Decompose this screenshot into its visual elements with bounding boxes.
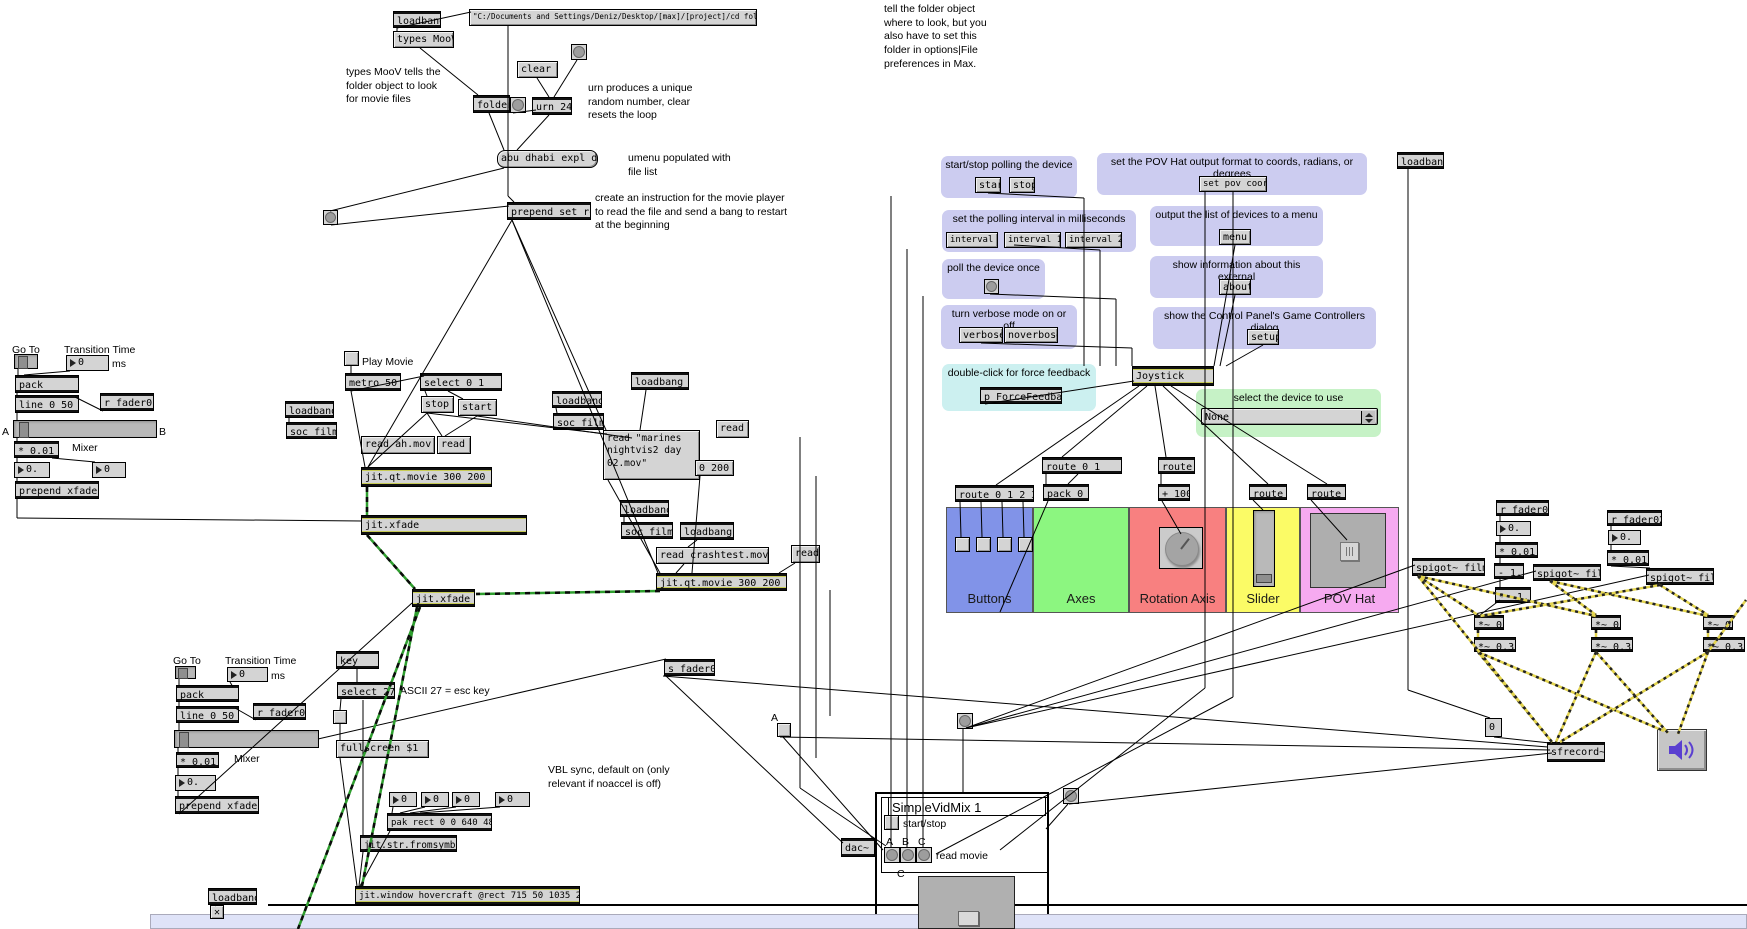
route-0-pov[interactable]: route 0 [1307,484,1346,500]
dropdown-arrows-icon[interactable] [1361,411,1375,424]
flonum-2-value: 0. [187,777,199,789]
comment-umenu: umenu populated with file list [628,152,746,179]
jit-xfade-2[interactable]: jit.xfade [412,589,475,607]
spigot-filmc[interactable]: spigot~ filmC [1646,568,1714,585]
transition-num-2-value: 0 [239,669,245,681]
read-ah-msg[interactable]: read ah.mov [361,436,435,454]
number-triangle-icon [96,466,102,474]
panel-slider-label: Slider [1227,592,1299,607]
comment-ms-1: ms [112,358,132,372]
comment-a: A [2,426,14,440]
max-patcher-canvas: start/stop polling the deviceset the POV… [0,0,1747,929]
umenu-files[interactable]: abu dhabi expl day ... [497,150,598,168]
panel-device-menu-label: output the list of devices to a menu [1150,206,1323,221]
num-zero-small[interactable]: 0 [1485,718,1502,737]
mixer-slider-1-handle[interactable] [19,422,29,438]
transition-num-1[interactable]: 0 [66,355,109,371]
flonum-1[interactable]: 0. [14,462,50,478]
read-msg-3[interactable]: read [791,545,820,563]
comment-play-movie: Play Movie [362,356,432,370]
about-msg[interactable]: about [1219,279,1251,295]
jit-qt-movie-2[interactable]: jit.qt.movie 300 200 [656,573,787,591]
clear-msg[interactable]: clear [517,61,558,78]
jit-xfade-1[interactable]: jit.xfade [361,515,527,535]
jit-str-fromsymbol[interactable]: jit.str.fromsymbol [360,835,457,852]
minus-1[interactable]: - 1. [1494,563,1524,579]
slider-vertical-handle[interactable] [1256,574,1272,583]
bang-film-c-circle-icon [918,849,930,861]
mixer-slider-2-handle[interactable] [179,732,189,748]
goto-mini-slider-2-handle[interactable] [178,668,188,679]
comment-folder-options: tell the folder object where to look, bu… [884,3,990,71]
soc-filmc[interactable]: soc filmC [621,522,673,539]
comment-types-moov: types MooV tells the folder object to lo… [346,66,446,107]
bang-folder-circle-icon [512,99,524,111]
joystick-obj[interactable]: Joystick [1132,366,1214,386]
flonum-r1[interactable]: 0. [1496,521,1531,536]
panel-pov-hat-label: POV Hat [1301,592,1398,607]
number-triangle-icon [1612,534,1618,542]
dac-obj[interactable]: dac~ [841,838,875,857]
prepend-xfade-2[interactable]: prepend xfade [175,796,259,814]
sig-mult-a1[interactable]: *~ 0 [1474,615,1504,630]
pack-2[interactable]: pack [176,685,239,702]
comment-mixer-2: Mixer [234,753,274,767]
vidmix-title[interactable]: SimpleVidMix 1 [888,797,1046,816]
s-fader01[interactable]: s fader01 [664,659,715,676]
plus-100[interactable]: + 100 [1158,484,1190,501]
pov-hat-widget-center-button[interactable] [1340,542,1359,561]
rect-num-3-value: 0 [464,794,470,806]
metro-50[interactable]: metro 50 [345,373,401,391]
spigot-filma[interactable]: spigot~ filmA [1412,558,1485,576]
comment-goto-1: Go To [12,344,57,358]
comment-startstop: start/stop [903,818,958,832]
start-panel-msg[interactable]: start [975,177,1001,193]
r-fader01-right[interactable]: r fader01 [1496,500,1549,516]
bang-prepend[interactable] [323,210,338,225]
mult-001-1[interactable]: * 0.01 [14,441,59,458]
speaker-icon [1667,738,1697,762]
prepend-set-read[interactable]: prepend set read [507,202,591,220]
rect-num-1-value: 0 [401,794,407,806]
types-moov-msg[interactable]: types MooV [393,31,454,48]
comment-vbl: VBL sync, default on (only relevant if n… [548,764,676,791]
setup-msg[interactable]: setup [1247,329,1279,345]
rect-num-4-value: 0 [507,794,513,806]
bang-mid[interactable] [957,713,973,729]
rect-num-2-value: 0 [433,794,439,806]
number-triangle-icon [179,779,185,787]
sig-mult-b2[interactable]: *~ 0.3 [1591,637,1633,652]
flonum-r2[interactable]: 0. [1608,530,1641,545]
comment-read-movie: read movie [936,850,996,864]
comment-ms-2: ms [271,670,291,684]
jit-window[interactable]: jit.window hovercraft @rect 715 50 1035 … [355,886,580,905]
sig-mult-b1[interactable]: *~ 0 [1591,615,1621,630]
mult-001-r2[interactable]: * 0.01 [1607,550,1649,566]
rect-num-4[interactable]: 0 [495,792,530,807]
read-msg-1[interactable]: read [716,420,749,438]
urn-obj[interactable]: urn 24 [532,97,572,115]
bang-film-a[interactable] [884,847,900,863]
loadbang-marines[interactable]: loadbang [631,372,689,390]
rotation-dial[interactable] [1159,527,1203,569]
verbose-msg[interactable]: verbose [959,327,1003,343]
toggle-button-1[interactable] [955,537,970,552]
toggle-bottom-left[interactable]: ✕ [210,905,224,919]
mult-001-r1[interactable]: * 0.01 [1495,542,1538,558]
toggle-button-4[interactable] [1018,537,1033,552]
number-triangle-icon [456,796,462,804]
line-1[interactable]: line 0 50 [15,395,79,413]
panel-polling-interval-label: set the polling interval in milliseconds [942,210,1136,225]
patch-cords [0,0,1747,929]
key-obj[interactable]: key [336,651,379,669]
panel-force-feedback-label: double-click for force feedback [942,364,1096,379]
r-fader02-right[interactable]: r fader02 [1607,510,1662,526]
number-triangle-icon [18,466,24,474]
comment-urn: urn produces a unique random number, cle… [588,82,716,123]
rect-num-3[interactable]: 0 [452,792,480,807]
fullscreen-msg[interactable]: fullscreen $1 [336,740,429,758]
bang-folder[interactable] [510,97,526,113]
pov-hat-widget[interactable] [1310,513,1386,588]
bang-film-a-circle-icon [886,849,898,861]
loadbang-filmb[interactable]: loadbang [552,391,602,408]
toggle-a[interactable] [777,723,791,737]
loadbang-bottom[interactable]: loadbang [208,888,257,905]
panel-rotation-axis-label: Rotation Axis [1130,592,1225,607]
interval-100-msg[interactable]: interval 100 [1004,232,1061,248]
pack-00[interactable]: pack 0 0 [1043,484,1089,501]
transition-num-1-value: 0 [78,357,84,369]
interval-250-msg[interactable]: interval 250 [1065,232,1122,248]
number-triangle-icon [70,359,76,367]
msg-0-200[interactable]: 0 200 [695,460,734,476]
read-msg-2[interactable]: read [437,436,471,454]
device-dropdown[interactable]: None [1201,408,1378,425]
bang-urn-circle-icon [573,46,585,58]
ezdac-speaker[interactable] [1657,729,1707,771]
route-0123[interactable]: route 0 1 2 3 [955,485,1034,502]
pak-rect[interactable]: pak rect 0 0 640 480 [387,813,492,831]
read-crashtest-msg[interactable]: read crashtest.mov [656,547,769,564]
goto-mini-slider-1-handle[interactable] [18,356,28,369]
comment-big-c: C [897,868,911,882]
panel-start-stop-polling-label: start/stop polling the device [941,156,1077,171]
sfrecord[interactable]: sfrecord~ [1547,742,1605,762]
toggle-vidmix-start[interactable] [884,815,899,830]
menu-msg[interactable]: menu [1219,229,1251,245]
comment-mixer-1: Mixer [72,442,112,456]
panel-select-device-label: select the device to use [1196,389,1381,404]
loadbang-filma[interactable]: loadbang [285,401,334,418]
transition-num-2[interactable]: 0 [227,667,268,682]
slider-vertical[interactable] [1253,510,1275,587]
panel-axes-label: Axes [1034,592,1128,607]
bang-vidmix-top-circle-icon [1065,790,1077,802]
flonum-r1-value: 0. [1508,523,1520,535]
bang-film-b[interactable] [900,847,916,863]
number-triangle-icon [499,796,505,804]
stop-panel-msg[interactable]: stop [1009,177,1035,193]
bang-film-b-circle-icon [902,849,914,861]
panel-poll-once-label: poll the device once [942,259,1045,274]
select-27[interactable]: select 27 [337,682,395,699]
toggle-bottom-left-check-icon: ✕ [214,907,220,918]
panel-buttons: Buttons [946,507,1033,613]
number-triangle-icon [1500,525,1506,533]
number-triangle-icon [425,796,431,804]
r-fader02-left[interactable]: r fader02 [253,703,306,720]
comment-ascii: ASCII 27 = esc key [400,685,500,699]
mixer-slider-1[interactable] [13,420,157,438]
comment-prepend: create an instruction for the movie play… [595,192,795,233]
bang-poll-once-circle-icon [986,281,997,292]
loadbang-crash[interactable]: loadbang [680,522,734,540]
toggle-esc[interactable] [333,710,347,724]
toggle-button-2[interactable] [976,537,991,552]
int-1[interactable]: 0 [92,462,126,478]
read-marines-msg[interactable]: read "marines nightvis2 day 02.mov" [603,430,700,480]
path-msg[interactable]: "C:/Documents and Settings/Deniz/Desktop… [469,9,757,26]
number-triangle-icon [231,671,237,679]
panel-buttons-label: Buttons [947,592,1032,607]
soc-filma[interactable]: soc filmA [286,422,337,439]
noverbose-msg[interactable]: noverbose [1004,327,1058,343]
toggle-button-3[interactable] [997,537,1012,552]
bang-film-c[interactable] [916,847,932,863]
jit-qt-movie-1[interactable]: jit.qt.movie 300 200 [361,467,492,487]
int-1-value: 0 [104,464,110,476]
mult-neg1[interactable]: * -1. [1495,587,1531,603]
loadbang-top[interactable]: loadbang [393,11,441,28]
bang-prepend-circle-icon [325,212,336,223]
vidmix-preview-button[interactable] [958,911,979,926]
rect-num-1[interactable]: 0 [389,792,417,807]
r-fader01-left[interactable]: r fader01 [100,393,154,411]
sig-mult-c1[interactable]: *~ 0 [1703,615,1733,630]
rect-num-2[interactable]: 0 [421,792,449,807]
route-2[interactable]: route 2 [1158,457,1195,474]
sig-mult-c2[interactable]: *~ 0.3 [1703,637,1745,652]
route-0-slider[interactable]: route 0 [1249,484,1287,500]
prepend-xfade-1[interactable]: prepend xfade [15,481,99,499]
start-msg[interactable]: start [458,399,497,416]
sig-mult-a2[interactable]: *~ 0.3 [1474,637,1516,652]
stop-msg[interactable]: stop [421,396,454,413]
flonum-2[interactable]: 0. [175,775,216,791]
bang-mid-circle-icon [959,715,971,727]
mixer-slider-2[interactable] [174,730,319,748]
loadbang-filmc[interactable]: loadbang [620,500,669,517]
interval-10-msg[interactable]: interval 10 [946,232,998,248]
comment-goto-2: Go To [173,655,218,669]
vidmix-preview [918,876,1015,929]
line-2[interactable]: line 0 50 [176,706,239,723]
device-dropdown-value: None [1205,412,1361,424]
folder-obj[interactable]: folder [473,95,510,113]
p-forcefeedback[interactable]: p ForceFeedback [980,387,1062,404]
toggle-play-movie[interactable] [344,351,359,366]
pack-1[interactable]: pack [15,375,79,393]
bang-urn[interactable] [571,44,587,60]
pov-stripes-icon [1346,547,1354,556]
flonum-r2-value: 0. [1620,532,1632,544]
flonum-1-value: 0. [26,464,38,476]
comment-b: B [159,426,171,440]
set-pov-coords-msg[interactable]: set pov coords [1199,176,1267,192]
panel-axes: Axes [1033,507,1129,613]
loadbang-right[interactable]: loadbang [1397,152,1444,169]
number-triangle-icon [393,796,399,804]
select-0-1[interactable]: select 0 1 [420,373,502,391]
spigot-filmb[interactable]: spigot~ filmB [1533,564,1601,581]
soc-filmb[interactable]: soc filmB [553,413,604,430]
bang-vidmix-top[interactable] [1063,788,1079,804]
route-01[interactable]: route 0 1 [1042,457,1122,474]
bang-poll-once[interactable] [984,279,999,294]
mult-001-2[interactable]: * 0.01 [176,752,219,768]
